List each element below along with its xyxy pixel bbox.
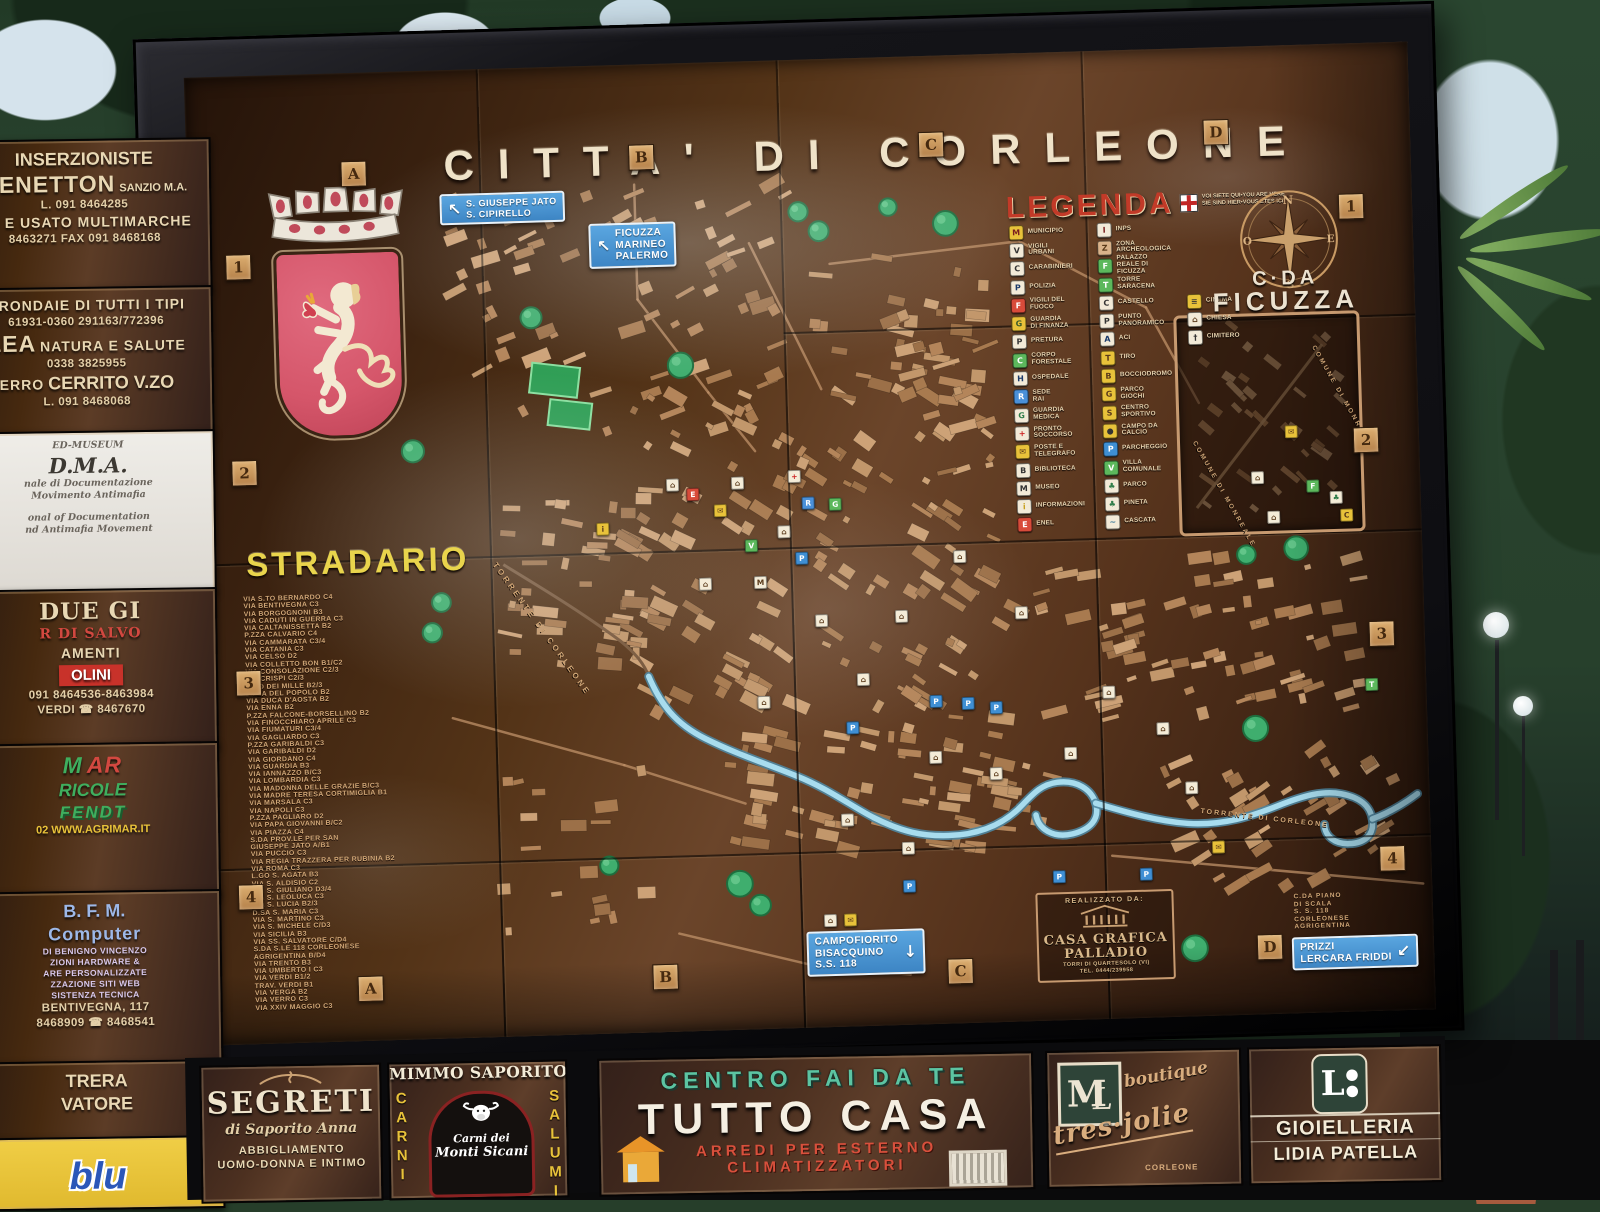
piano-di-scala-label: C.DA PIANO DI SCALA S. S. 118 CORLEONESE… [1293, 892, 1351, 931]
grid-label-top-B: B [628, 144, 655, 171]
map-marker: P [929, 695, 942, 708]
map-marker: ⌂ [1267, 511, 1280, 524]
grid-label-bottom-D: D [1257, 934, 1284, 961]
map-marker: P [1140, 868, 1153, 881]
legend-item-icon: C [1099, 295, 1114, 310]
lp-monogram: L [1311, 1053, 1368, 1114]
legend-item-label: ZONA ARCHEOLOGICA [1116, 239, 1171, 254]
legend-item-icon: P [1012, 334, 1027, 349]
radiator-icon [949, 1150, 1008, 1187]
ad-line: DUE GI [0, 596, 209, 626]
palladio-temple-icon [1075, 903, 1136, 929]
lamp-post [1495, 640, 1499, 820]
map-marker: ⌂ [1102, 686, 1115, 699]
legend-item-icon: M [1008, 225, 1023, 240]
stradario-list: VIA S.TO BERNARDO C4VIA BENTIVEGNA C3VIA… [243, 590, 470, 1014]
boutique-label: boutique [1122, 1058, 1209, 1092]
legend-item-icon: B [1016, 462, 1031, 477]
sign-line: S.S. 118 [815, 957, 899, 971]
map-marker: R [801, 496, 814, 509]
map-marker: ⌂ [815, 614, 828, 627]
credits-panel: REALIZZATO DA: CASA GRAFICA PALLADIO TOR… [1035, 889, 1176, 983]
house-icon [623, 1152, 660, 1183]
corleone-coat-of-arms [249, 166, 427, 451]
map-marker: ⌂ [841, 813, 854, 826]
lamp-post [1522, 716, 1525, 856]
rampant-lion [276, 252, 403, 438]
carni-vertical: CARNI [393, 1090, 412, 1185]
sign-ficuzza-marineo-palermo: ↖ FICUZZA MARINEO PALERMO [588, 221, 676, 268]
sign-campofiorito-bisacquino: CAMPOFIORITO BISACQUINO S.S. 118 ↓ [806, 928, 925, 976]
legend-item-label: ACI [1119, 335, 1131, 342]
grid-label-bottom-A: A [357, 975, 384, 1002]
legend-item-icon: S [1102, 405, 1117, 420]
legend-item-icon: P [1010, 280, 1025, 295]
ad-panel-dma: ED-MUSEUMD.M.A.nale di DocumentazioneMov… [0, 429, 217, 596]
sign-san-giuseppe-jato: ↖ S. GIUSEPPE JATO S. CIPIRELLO [439, 191, 565, 226]
grid-label-left-4: 4 [238, 884, 265, 911]
legend-item-icon: A [1100, 332, 1115, 347]
arrow-icon: ↖ [447, 200, 461, 219]
legend-item-label: POLIZIA [1029, 283, 1056, 291]
gioielleria-owner: LIDIA PATELLA [1251, 1138, 1441, 1166]
ad-panel-mar: MARRICOLEFENDT02 WWW.AGRIMAR.IT [0, 741, 221, 900]
legend-item-icon: F [1011, 298, 1026, 313]
ad-line: ERRO [0, 375, 44, 395]
bottom-ads-row: SEGRETI di Saporito Anna ABBIGLIAMENTO U… [185, 1036, 1447, 1200]
palm-frond [1469, 225, 1600, 257]
map-marker: ✉ [844, 913, 857, 926]
legend-item-label: POSTE E TELEGRAFO [1034, 443, 1076, 458]
ad-line: M [62, 752, 83, 779]
ad-line: BENETTON [0, 170, 115, 199]
ad-line: GRONDAIE DI TUTTI I TIPI [0, 294, 205, 316]
legend-item-label: CARABINIERI [1029, 264, 1073, 272]
ficuzza-heading: C·DA FICUZZA [1190, 265, 1381, 315]
map-marker: P [903, 880, 916, 893]
ad-line: NATURA E SALUTE [40, 335, 186, 356]
legend-item-icon: M [1016, 481, 1031, 496]
grid-label-bottom-B: B [652, 964, 679, 991]
legend-item-icon: C [1012, 353, 1027, 368]
map-marker: ⌂ [1015, 606, 1028, 619]
mimmo-title: MIMMO SAPORITO [389, 1061, 565, 1083]
map-marker: ⌂ [731, 476, 744, 489]
ad-line: CERRITO V.ZO [48, 371, 174, 396]
legend-item-icon: ♣ [1105, 496, 1120, 511]
map-marker: P [795, 552, 808, 565]
map-marker: ⌂ [929, 751, 942, 764]
ad-line: VO E USATO MULTIMARCHE [0, 211, 204, 233]
grid-label-left-2: 2 [231, 460, 258, 487]
map-marker: + [788, 470, 801, 483]
legend-column-2: I INPS Z ZONA ARCHEOLOGICA F PALAZZO REA… [1096, 218, 1197, 532]
arrow-icon: ↙ [1397, 941, 1411, 960]
legend-item-label: GUARDIA DI FINANZA [1030, 315, 1069, 330]
ad-gioielleria: L GIOIELLERIA LIDIA PATELLA [1247, 1044, 1443, 1185]
monti-sicani-sign: Carni dei Monti Sicani [428, 1090, 536, 1198]
legend-item-label: PARCO GIOCHI [1120, 386, 1144, 401]
ad-panel-a2: GRONDAIE DI TUTTI I TIPI61931-0360 29116… [0, 285, 215, 438]
segreti-name: SEGRETI [202, 1085, 381, 1122]
legend-item-icon: ~ [1105, 515, 1120, 530]
grid-label-left-1: 1 [225, 254, 252, 281]
map-board-frame: CITTA' DI CORLEONE [133, 1, 1465, 1069]
map-marker: P [1053, 870, 1066, 883]
map-marker: ⌂ [1251, 471, 1264, 484]
legend-item-label: PARCO [1123, 481, 1147, 489]
ad-line: AR [87, 751, 123, 778]
legend-item-label: INPS [1116, 226, 1132, 233]
legend-item-label: PUNTO PANORAMICO [1118, 313, 1164, 328]
map-marker: ⌂ [1156, 722, 1169, 735]
salumi-vertical: SALUMI [546, 1087, 565, 1200]
map-marker: ⌂ [1064, 747, 1077, 760]
legend-item-label: VIGILI DEL FUOCO [1030, 297, 1065, 312]
legend-item-label: PARCHEGGIO [1122, 444, 1167, 452]
arrow-icon: ↓ [903, 941, 917, 960]
legend-item-icon: V [1009, 243, 1024, 258]
monti-sicani-line: Monti Sicani [432, 1144, 532, 1161]
legend-item: ~ CASCATA [1105, 511, 1198, 532]
ad-line: 02 WWW.AGRIMAR.IT [0, 821, 212, 839]
crest-shield [273, 249, 407, 441]
legend-item-label: PRONTO SOCCORSO [1033, 425, 1072, 440]
map-marker: ⌂ [895, 610, 908, 623]
ad-line: nd Antimafia Movement [0, 522, 208, 538]
arrow-icon: ↖ [597, 236, 611, 255]
grid-label-top-C: C [918, 131, 945, 158]
map-marker: ⌂ [1185, 781, 1198, 794]
map-marker: ✉ [1212, 840, 1225, 853]
grid-label-top-A: A [340, 161, 367, 188]
ad-line: D.M.A. [0, 451, 207, 479]
legend-item-icon: R [1013, 389, 1028, 404]
tutto-casa: TUTTO CASA [600, 1089, 1033, 1145]
legend-item-icon: E [1017, 517, 1032, 532]
bull-head-icon [461, 1099, 501, 1126]
ad-line: VATORE [0, 1091, 216, 1117]
segreti-line: UOMO-DONNA E INTIMO [203, 1156, 381, 1173]
you-are-here-flag-icon [1180, 194, 1199, 213]
legend-item-icon: F [1098, 259, 1113, 274]
map-marker: ⌂ [902, 842, 915, 855]
map-marker: i [596, 522, 609, 535]
ad-tutto-casa: CENTRO FAI DA TE TUTTO CASA ARREDI PER E… [597, 1051, 1035, 1197]
legend-item-label: ENEL [1036, 521, 1054, 528]
sign-prizzi-lercara: PRIZZI LERCARA FRIDDI ↙ [1292, 934, 1419, 971]
ad-panel-bfm: B. F. M.ComputerDI BENIGNO VINCENZOZIONI… [0, 889, 224, 1072]
ad-line: INSERZIONISTE [0, 146, 203, 172]
ad-line: OLINI [59, 664, 123, 686]
map-marker: F [1306, 479, 1319, 492]
legend-item-label: CASCATA [1124, 518, 1156, 526]
legend-item-label: OSPEDALE [1032, 374, 1069, 382]
mural-crown [254, 174, 416, 249]
legend-item-label: PRETURA [1031, 337, 1063, 345]
map-marker: P [846, 721, 859, 734]
grid-label-top-D: D [1202, 119, 1229, 146]
legend-item-icon: T [1098, 277, 1113, 292]
legend-item-label: PALAZZO REALE DI FICUZZA [1116, 255, 1148, 277]
map-marker: ⌂ [757, 696, 770, 709]
legend-item-icon: Z [1097, 240, 1112, 255]
legend-item-label: PINETA [1124, 500, 1148, 508]
legend-item-label: GUARDIA MEDICA [1033, 407, 1065, 422]
map-marker: ✉ [1285, 425, 1298, 438]
legend-item-icon: G [1101, 387, 1116, 402]
ad-line: LEA [0, 331, 36, 359]
legend-column-1: M MUNICIPIO V VIGILI URBANI C CARABINIER… [1008, 221, 1109, 535]
compass-e: E [1327, 233, 1335, 245]
grid-label-right-2: 2 [1353, 427, 1380, 454]
legend-item-label: MUSEO [1035, 484, 1060, 492]
ad-line: AMENTI [0, 642, 210, 664]
compass-o: O [1243, 235, 1252, 247]
ad-line: TRERA [0, 1068, 216, 1094]
map-marker: ♣ [1330, 491, 1343, 504]
sign-line: S. CIPIRELLO [466, 206, 557, 219]
tres-jolie-city: CORLEONE [1145, 1162, 1198, 1172]
ad-line: 8463271 FAX 091 8468168 [0, 230, 204, 248]
legend-item-label: BIBLIOTECA [1035, 465, 1076, 473]
ad-line: SANZIO M.A. [119, 180, 187, 196]
grid-label-right-3: 3 [1368, 620, 1395, 647]
ad-line: B. F. M. [0, 898, 213, 924]
grid-label-bottom-C: C [947, 958, 974, 985]
legend-item-label: CORPO FORESTALE [1031, 352, 1071, 367]
grid-label-right-1: 1 [1338, 193, 1365, 220]
legend-item: † CIMITERO [1188, 326, 1269, 347]
compass-n: N [1282, 193, 1293, 207]
legend-item-label: INFORMAZIONI [1036, 502, 1085, 510]
legend-item-icon: ♣ [1104, 478, 1119, 493]
map-marker: ⌂ [699, 577, 712, 590]
legend-item-label: VILLA COMUNALE [1123, 459, 1162, 474]
ad-mimmo-saporito: MIMMO SAPORITO CARNI SALUMI Carni dei Mo… [387, 1059, 569, 1200]
ad-line: VERDI ☎ 8467670 [0, 701, 211, 719]
legend-item-icon: B [1101, 368, 1116, 383]
grid-label-left-3: 3 [235, 670, 262, 697]
map-marker: ⌂ [857, 673, 870, 686]
legend-item-icon: † [1188, 330, 1203, 345]
legend-item-icon: ✉ [1015, 444, 1030, 459]
map-marker: ⌂ [990, 767, 1003, 780]
left-ads-column: INSERZIONISTEBENETTONSANZIO M.A.L. 091 8… [0, 97, 215, 1200]
map-marker: ⌂ [777, 525, 790, 538]
legend-item-label: CAMPO DA CALCIO [1121, 423, 1158, 438]
map-marker: T [1365, 678, 1378, 691]
map-marker: P [961, 697, 974, 710]
sign-line: CAMPOFIORITO [815, 934, 899, 948]
legend-item-label: CENTRO SPORTIVO [1121, 404, 1156, 419]
ad-panel-a1: INSERZIONISTEBENETTONSANZIO M.A.L. 091 8… [0, 137, 213, 294]
gioielleria-name: GIOIELLERIA [1250, 1112, 1440, 1141]
legend-item-label: SEDE RAI [1032, 389, 1051, 403]
ficuzza-heading-line2: FICUZZA [1191, 287, 1382, 315]
map-marker: M [754, 576, 767, 589]
legend-item-icon: T [1100, 350, 1115, 365]
legend-item-icon: C [1010, 261, 1025, 276]
monogram-dots [1345, 1069, 1359, 1099]
legend-item-label: CIMITERO [1207, 333, 1240, 341]
legend-item-icon: G [1011, 316, 1026, 331]
ad-segreti: SEGRETI di Saporito Anna ABBIGLIAMENTO U… [199, 1063, 383, 1204]
sign-line: FICUZZA [615, 227, 668, 240]
grid-label-right-4: 4 [1379, 845, 1406, 872]
legend-item-label: VIGILI URBANI [1028, 243, 1054, 258]
lamp-globe [1513, 696, 1533, 716]
legend-item-icon: ⌂ [1187, 312, 1202, 327]
map-marker: G [829, 498, 842, 511]
sign-line: PALERMO [615, 250, 668, 263]
map-marker: ⌂ [666, 478, 679, 491]
segreti-owner: di Saporito Anna [202, 1119, 380, 1140]
legend-item-icon: V [1104, 460, 1119, 475]
legend-item-icon: H [1013, 371, 1028, 386]
map-marker: C [1340, 508, 1353, 521]
ad-tres-jolie: M L boutique tres·jolie CORLEONE [1045, 1048, 1243, 1189]
legend-item-icon: + [1014, 426, 1029, 441]
ad-line: blu [69, 1155, 127, 1199]
map-marker: P [990, 701, 1003, 714]
map-marker: ⌂ [953, 550, 966, 563]
map-board: CITTA' DI CORLEONE [184, 42, 1436, 1046]
ad-line: RICOLE [0, 777, 212, 803]
legend-item-icon: G [1014, 408, 1029, 423]
map-marker: ✉ [714, 504, 727, 517]
legend-item-label: CASTELLO [1118, 298, 1154, 306]
legend-item-label: BOCCIODROMO [1120, 371, 1172, 379]
ad-line: L. 091 8468068 [0, 393, 206, 411]
legend-item-icon: I [1096, 222, 1111, 237]
map-marker: E [686, 488, 699, 501]
legend-item-label: TORRE SARACENA [1117, 276, 1155, 291]
legend-item-icon: P [1099, 314, 1114, 329]
monogram-lp: L [1320, 1064, 1345, 1104]
sign-line: LERCARA FRIDDI [1300, 951, 1392, 965]
ad-panel-duegi: DUE GIR DI SALVOAMENTIOLINI091 8464536-8… [0, 587, 219, 752]
ad-line: Computer [0, 921, 214, 947]
legend-item-icon: i [1017, 499, 1032, 514]
legend-item-icon: ● [1102, 423, 1117, 438]
stradario-heading: STRADARIO [246, 540, 470, 585]
legend-item-label: MUNICIPIO [1028, 228, 1064, 236]
ad-line: 8468909 ☎ 8468541 [0, 1014, 215, 1032]
map-marker: V [745, 539, 758, 552]
legend-item-label: TIRO [1119, 354, 1135, 361]
legend-item-icon: P [1103, 442, 1118, 457]
ad-line: 61931-0360 291163/772396 [0, 313, 205, 331]
map-marker: ⌂ [824, 914, 837, 927]
legend-item: E ENEL [1017, 513, 1110, 534]
lamp-globe [1483, 612, 1509, 638]
